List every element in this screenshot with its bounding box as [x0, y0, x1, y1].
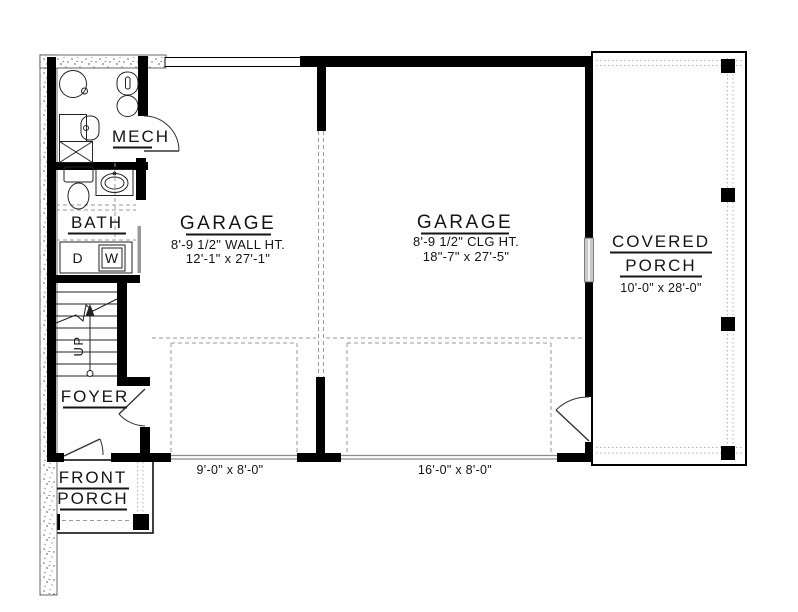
covered-porch-label-2: PORCH	[625, 256, 696, 275]
front-porch-label-2: PORCH	[57, 489, 128, 508]
washer-dryer-closet	[60, 242, 132, 273]
window	[585, 238, 594, 282]
garage2-label: GARAGE	[417, 212, 513, 233]
covered-porch-label-1: COVERED	[612, 232, 710, 251]
garage1-height-note: 8'-9 1/2" WALL HT.	[171, 237, 285, 252]
front-door	[64, 439, 103, 456]
mech-label: MECH	[112, 127, 170, 146]
garage1-size: 12'-1" x 27'-1"	[186, 251, 271, 266]
covered-porch-size: 10'-0" x 28'-0"	[620, 281, 701, 295]
foyer-label: FOYER	[61, 387, 130, 406]
covered-porch-label-group: COVERED PORCH 10'-0" x 28'-0"	[610, 232, 712, 295]
equipment-box-icon	[60, 142, 93, 163]
stair-break-line	[56, 299, 117, 323]
garage-door2-size: 16'-0" x 8'-0"	[418, 463, 492, 477]
garage2-height-note: 8'-9 1/2" CLG HT.	[413, 234, 519, 249]
porch-post	[133, 514, 149, 530]
garage-door-panels	[171, 456, 557, 460]
dryer-label: D	[72, 250, 83, 266]
porch-post	[721, 446, 735, 460]
floor-plan-drawing: MECH BATH D W UP FOYER GARAGE 8'-9 1/2" …	[0, 0, 798, 612]
floor-plan: MECH BATH D W UP FOYER GARAGE 8'-9 1/2" …	[0, 0, 798, 612]
tank-icon	[117, 72, 138, 95]
porch-post	[721, 317, 735, 331]
garage1-label-group: GARAGE 8'-9 1/2" WALL HT. 12'-1" x 27'-1…	[171, 213, 285, 266]
front-porch-label-1: FRONT	[59, 468, 128, 487]
top-wall-thin-section	[165, 58, 302, 67]
mech-fixtures	[60, 71, 139, 163]
bath-label: BATH	[71, 213, 123, 232]
washer-label: W	[105, 250, 119, 266]
garage1-label: GARAGE	[180, 213, 276, 234]
tank-icon	[117, 96, 138, 117]
porch-post	[721, 188, 735, 202]
garage-door1-size: 9'-0" x 8'-0"	[197, 463, 264, 477]
furnace-icon	[60, 115, 87, 142]
porch-door	[556, 397, 589, 441]
stairs	[56, 292, 117, 377]
pocket-door	[138, 226, 142, 273]
garage2-label-group: GARAGE 8'-9 1/2" CLG HT. 18"-7" x 27'-5"	[413, 212, 519, 264]
up-label: UP	[71, 335, 86, 356]
garage2-size: 18"-7" x 27'-5"	[423, 249, 510, 264]
porch-post	[721, 59, 735, 73]
front-porch-label-group: FRONT PORCH	[57, 468, 129, 510]
